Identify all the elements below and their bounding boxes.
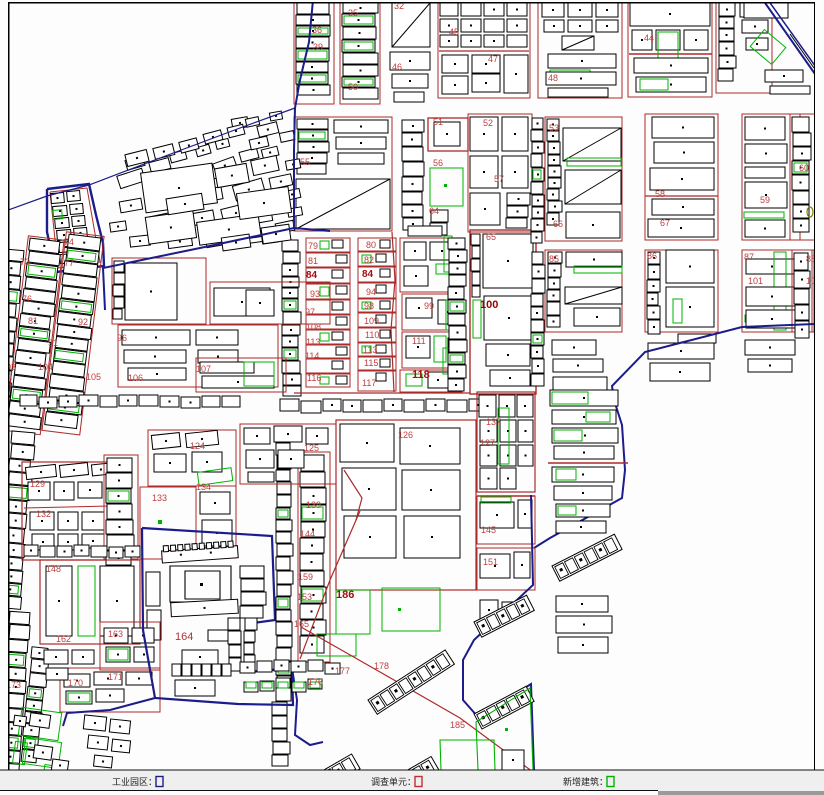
svg-text:64: 64 [429, 206, 439, 216]
svg-text:100: 100 [480, 299, 498, 311]
svg-text:97: 97 [305, 307, 315, 317]
svg-text:106: 106 [128, 373, 143, 383]
svg-text:76: 76 [22, 294, 32, 304]
svg-text:59: 59 [760, 195, 770, 205]
svg-text:86: 86 [647, 251, 657, 261]
svg-text:67: 67 [660, 218, 670, 228]
svg-text:50: 50 [348, 82, 358, 92]
svg-text:129: 129 [30, 479, 45, 489]
svg-text:139: 139 [306, 500, 321, 510]
svg-text:133: 133 [152, 493, 167, 503]
svg-text:77: 77 [64, 258, 74, 268]
svg-text:52: 52 [483, 118, 493, 128]
svg-text:80: 80 [366, 240, 376, 250]
svg-text:46: 46 [392, 62, 402, 72]
svg-text:104: 104 [38, 362, 53, 372]
svg-text:85: 85 [549, 254, 559, 264]
svg-text:109: 109 [364, 316, 379, 326]
svg-text:171: 171 [108, 672, 123, 682]
svg-text:调查单元：: 调查单元： [371, 776, 416, 787]
svg-text:84: 84 [306, 270, 318, 281]
svg-text:39: 39 [313, 42, 323, 52]
svg-text:159: 159 [298, 572, 313, 582]
svg-text:93: 93 [310, 289, 320, 299]
svg-text:170: 170 [68, 678, 83, 688]
svg-text:105: 105 [86, 372, 101, 382]
svg-text:108: 108 [306, 322, 321, 332]
svg-text:151: 151 [483, 557, 498, 567]
svg-text:53: 53 [549, 123, 559, 133]
svg-text:79: 79 [308, 241, 318, 251]
svg-text:98: 98 [364, 301, 374, 311]
svg-text:178: 178 [374, 661, 389, 671]
svg-text:125: 125 [304, 443, 319, 453]
svg-text:153: 153 [297, 592, 312, 602]
svg-text:45: 45 [449, 27, 459, 37]
svg-text:82: 82 [364, 255, 374, 265]
svg-text:127: 127 [480, 438, 495, 448]
svg-text:177: 177 [335, 666, 350, 676]
svg-text:55: 55 [300, 157, 310, 167]
svg-text:91: 91 [48, 338, 58, 348]
svg-text:116: 116 [307, 373, 321, 383]
svg-text:66: 66 [553, 219, 563, 229]
svg-text:107: 107 [196, 364, 211, 374]
svg-text:73: 73 [20, 257, 30, 267]
svg-text:65: 65 [486, 232, 496, 242]
svg-text:35: 35 [348, 8, 358, 18]
svg-text:101: 101 [748, 276, 763, 286]
svg-text:126: 126 [398, 430, 413, 440]
svg-text:185: 185 [450, 720, 465, 730]
svg-text:110: 110 [365, 330, 379, 340]
svg-text:84: 84 [362, 269, 374, 280]
svg-text:165: 165 [294, 619, 309, 629]
svg-text:81: 81 [308, 256, 318, 266]
svg-text:96: 96 [117, 333, 127, 343]
svg-text:74: 74 [64, 237, 74, 247]
svg-text:145: 145 [481, 525, 496, 535]
svg-text:118: 118 [412, 369, 430, 381]
svg-text:114: 114 [305, 351, 319, 361]
svg-text:148: 148 [46, 564, 61, 574]
svg-text:176: 176 [308, 677, 323, 687]
svg-text:162: 162 [56, 634, 71, 644]
svg-text:137: 137 [486, 417, 501, 427]
svg-text:36: 36 [312, 25, 322, 35]
svg-text:164: 164 [175, 631, 193, 643]
svg-text:117: 117 [362, 378, 376, 388]
svg-text:新增建筑：: 新增建筑： [563, 776, 608, 787]
svg-text:94: 94 [366, 287, 376, 297]
svg-text:163: 163 [108, 629, 123, 639]
svg-text:111: 111 [412, 336, 426, 346]
svg-text:186: 186 [336, 589, 354, 601]
svg-text:47: 47 [488, 54, 498, 64]
svg-text:134: 134 [196, 482, 211, 492]
svg-text:99: 99 [424, 301, 434, 311]
svg-text:132: 132 [36, 509, 51, 519]
svg-text:56: 56 [433, 158, 443, 168]
svg-text:44: 44 [644, 33, 654, 43]
svg-text:144: 144 [300, 529, 315, 539]
svg-text:58: 58 [655, 189, 665, 199]
svg-text:60: 60 [799, 163, 809, 173]
svg-text:87: 87 [744, 252, 754, 262]
svg-text:124: 124 [190, 441, 205, 451]
svg-text:51: 51 [433, 117, 443, 127]
svg-text:113: 113 [306, 337, 320, 347]
svg-text:81: 81 [28, 316, 38, 326]
svg-text:48: 48 [548, 73, 558, 83]
svg-text:113: 113 [363, 345, 377, 355]
svg-text:工业园区：: 工业园区： [112, 777, 157, 787]
svg-text:92: 92 [78, 317, 88, 327]
svg-text:115: 115 [364, 358, 378, 368]
svg-text:57: 57 [494, 174, 504, 184]
